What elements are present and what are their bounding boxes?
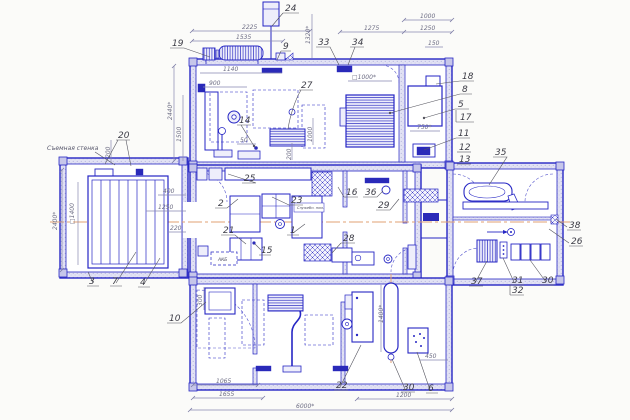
floor-plan-stage: 2225 1535 1320* 1000 1275 1250 150 2440*… [0, 0, 630, 420]
callout-23: 23 [291, 196, 303, 206]
wall-plate [136, 169, 143, 175]
dim-150: 150 [428, 40, 440, 47]
floor-strip [333, 366, 348, 371]
callout-24: 24 [285, 4, 297, 14]
callout-25: 25 [244, 174, 256, 184]
wall-connector-33-34 [337, 66, 352, 72]
callout-12: 12 [459, 143, 471, 153]
callout-17: 17 [460, 113, 472, 123]
callout-6: 6 [428, 384, 434, 394]
dim-50: 50 [240, 137, 248, 144]
locker-30 [521, 244, 530, 260]
callout-11: 11 [458, 129, 469, 139]
right-module-walls [446, 162, 564, 285]
heater-37 [477, 240, 497, 262]
callout-37: 37 [471, 277, 483, 287]
passage-mat [423, 213, 439, 221]
callout-21: 21 [223, 226, 234, 236]
callout-9: 9 [283, 42, 289, 52]
callout-13: 13 [459, 155, 471, 165]
left-module-louver-panel [88, 169, 168, 268]
console-screen [268, 295, 303, 311]
callout-31: 31 [512, 276, 523, 286]
locker-30 [531, 244, 540, 260]
dim-1655: 1655 [219, 391, 234, 398]
dim-750: 750* [417, 124, 431, 131]
sink-36 [382, 186, 390, 194]
roof-machine-24 [263, 2, 279, 59]
callout-1: 1 [290, 226, 296, 236]
dim-1250-left: 1250 [158, 204, 173, 211]
callout-33: 33 [318, 38, 330, 48]
floor-strip [256, 366, 271, 371]
dim-400: 400 [163, 188, 175, 195]
locker-30 [541, 244, 550, 260]
unit-5 [408, 86, 442, 126]
callout-18: 18 [462, 72, 474, 82]
dim-450: 450 [425, 353, 437, 360]
tank-30 [384, 283, 398, 353]
floor-plan-drawing: 2225 1535 1320* 1000 1275 1250 150 2440*… [0, 0, 630, 420]
operator-seat [276, 220, 285, 229]
removable-wall-label: Съемная стенка [47, 145, 99, 152]
callout-5: 5 [458, 100, 464, 110]
dim-220: 220 [170, 225, 182, 232]
dim-2225: 2225 [242, 24, 257, 31]
cabinet-8 [346, 95, 394, 147]
callout-29: 29 [378, 201, 390, 211]
battery-label: АКБ [217, 257, 227, 263]
door-mat [365, 178, 389, 183]
console-base [283, 366, 301, 372]
callout-22: 22 [336, 381, 348, 391]
callout-8: 8 [462, 85, 468, 95]
dim-1500: 1500 [176, 127, 183, 142]
heater-27 [270, 129, 305, 146]
floor-mat [304, 244, 331, 261]
dim-900: 900 [209, 80, 221, 87]
callout-10: 10 [169, 314, 181, 324]
callout-3: 3 [89, 277, 95, 287]
dim-200-a: 200 [286, 148, 293, 160]
dim-1400: 1400* [378, 305, 385, 323]
callout-19: 19 [172, 39, 184, 49]
dim-1535: 1535 [236, 34, 251, 41]
callout-30-bottom: 30 [403, 383, 415, 393]
locker-30 [511, 244, 520, 260]
valve-symbol [342, 319, 352, 329]
tambour-mat-29 [404, 189, 438, 202]
callout-15: 15 [261, 246, 273, 256]
callout-27: 27 [301, 81, 313, 91]
callout-38: 38 [569, 221, 581, 231]
bench-26 [463, 202, 548, 209]
dim-1275: 1275 [364, 25, 379, 32]
speaker-box-6 [408, 328, 428, 353]
callout-34: 34 [352, 38, 364, 48]
cabinet-22 [352, 292, 373, 342]
callout-4: 4 [140, 278, 146, 288]
callout-36: 36 [365, 188, 377, 198]
dim-1200: 1200 [396, 392, 411, 399]
dim-sq1000: □1000* [352, 74, 376, 81]
floor-mat [312, 172, 332, 196]
callout-32: 32 [512, 286, 524, 296]
callout-7: 7 [112, 277, 118, 287]
dim-1320: 1320* [305, 26, 312, 44]
dim-1065: 1065 [216, 378, 231, 385]
dim-2440: 2440* [167, 102, 174, 120]
callout-28: 28 [343, 234, 355, 244]
callout-30-right: 30 [542, 276, 554, 286]
dim-2400: 2400* [52, 212, 59, 230]
dim-1250-top: 1250 [420, 25, 435, 32]
callout-26: 26 [571, 237, 583, 247]
dim-1140: 1140 [223, 66, 238, 73]
dim-1000-v: 1000 [307, 127, 314, 142]
callout-14: 14 [239, 116, 251, 126]
wall-plate [262, 68, 282, 73]
dim-6000: 6000* [296, 403, 314, 410]
dim-1000-top: 1000 [420, 13, 435, 20]
callout-35: 35 [495, 148, 507, 158]
left-module-doorway [183, 202, 197, 238]
module-passage [421, 200, 447, 238]
dim-sq1400: □1400 [69, 203, 76, 224]
callout-20: 20 [118, 131, 130, 141]
service-room-label: Служебн. пом. [297, 206, 324, 210]
callout-2: 2 [218, 199, 224, 209]
dim-200-b: 200 [105, 146, 112, 158]
callout-16: 16 [346, 188, 358, 198]
